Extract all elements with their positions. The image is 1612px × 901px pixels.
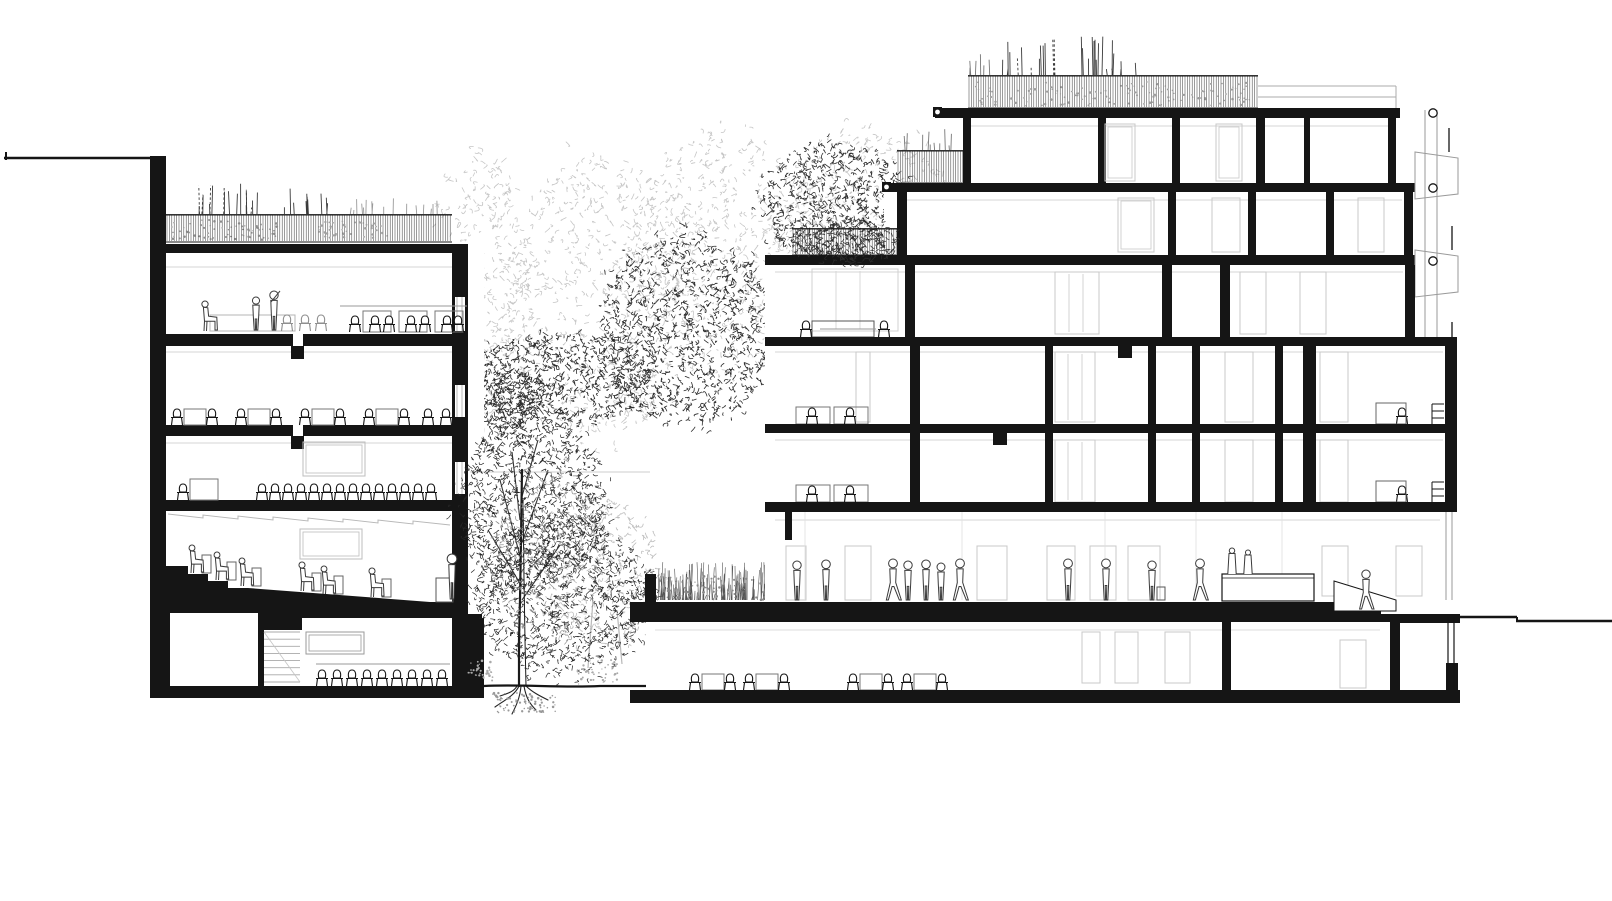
left-building <box>150 156 484 698</box>
section-drawing-canvas <box>0 0 1612 901</box>
architectural-section-svg <box>0 0 1612 901</box>
